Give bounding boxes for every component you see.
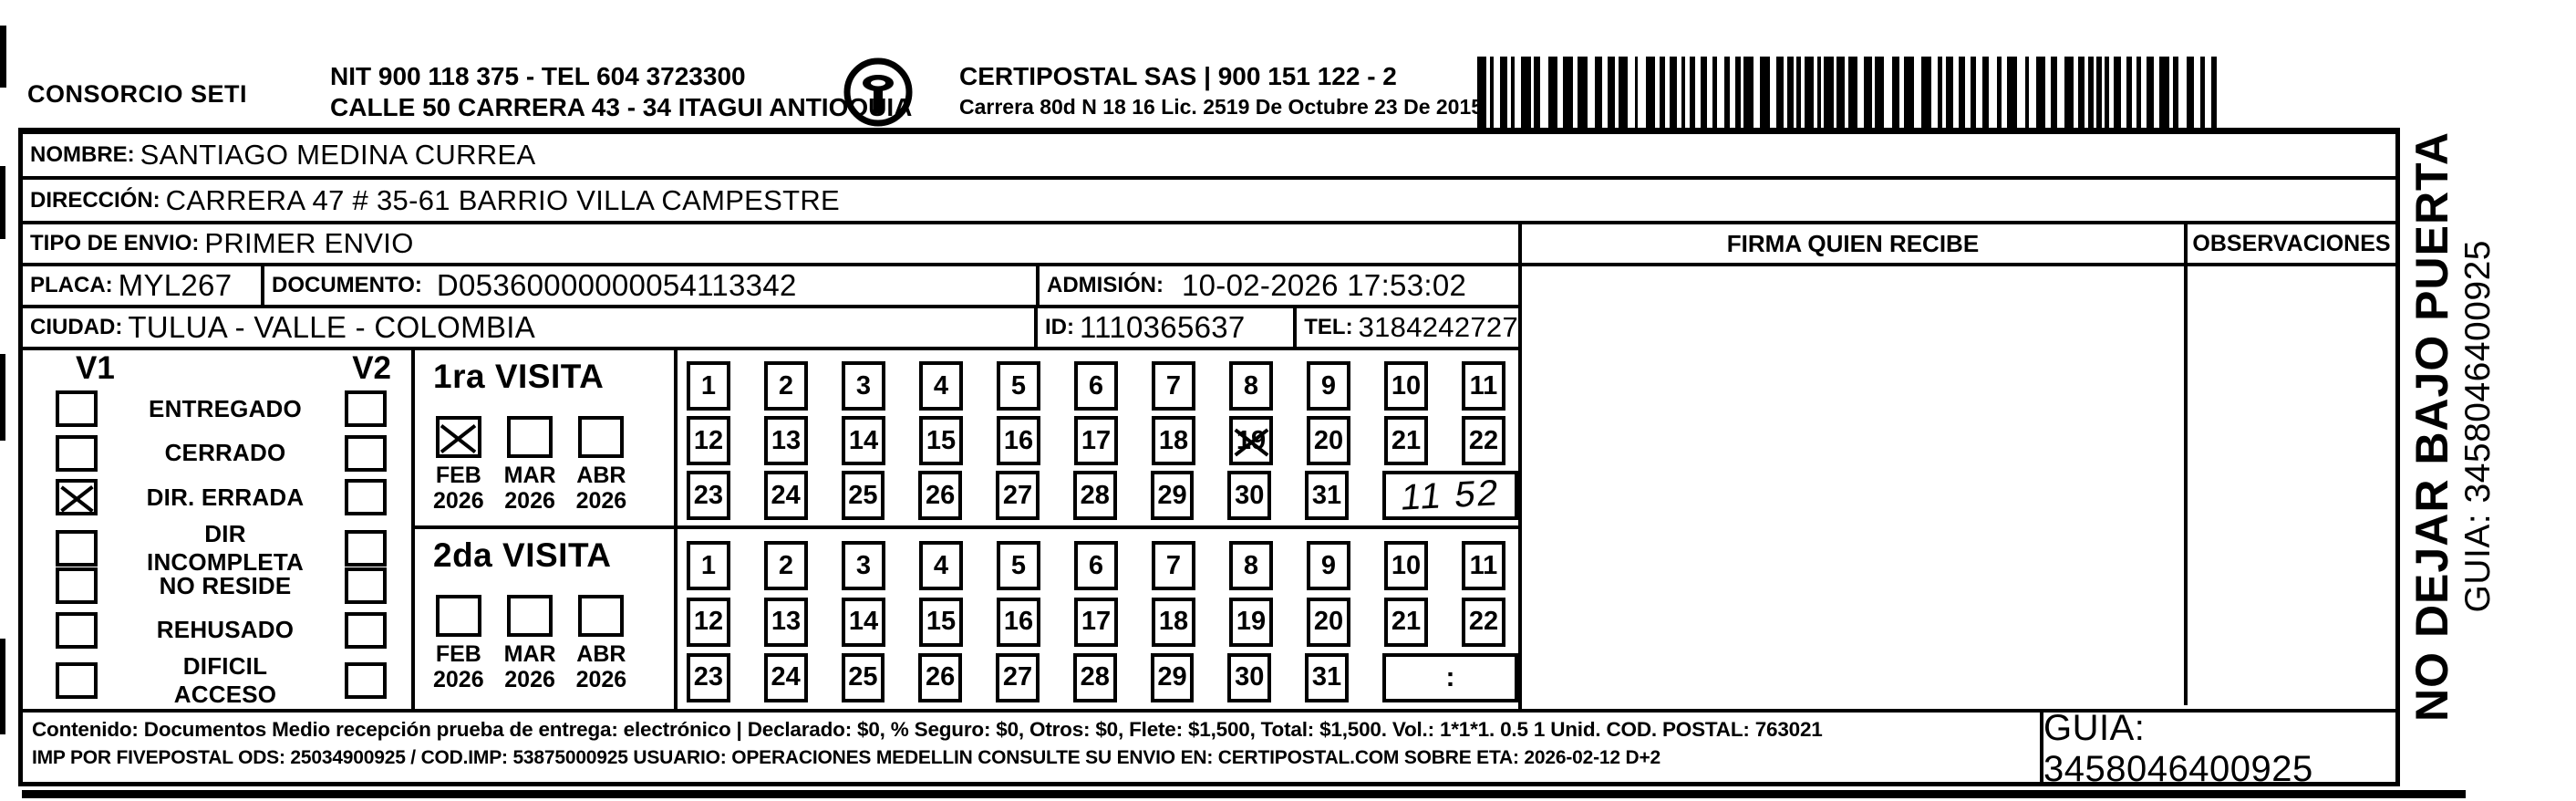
status-row: NO RESIDE	[23, 564, 411, 609]
nombre-label: NOMBRE:	[23, 142, 140, 168]
month-label: FEB2026	[433, 463, 484, 514]
tel-value: 3184242727	[1359, 311, 1518, 344]
status-row: DIR INCOMPLETA	[23, 520, 411, 565]
v1-checkbox	[56, 479, 98, 515]
calendar-row: 1213141516171819202122	[687, 598, 1518, 647]
calendar-row: 23242526272829303111 52	[687, 471, 1518, 520]
v2-checkbox	[345, 530, 387, 567]
month-checkboxes: FEB2026MAR2026ABR2026	[433, 595, 674, 692]
day-cell: 15	[919, 416, 963, 465]
tel-label: TEL:	[1297, 315, 1358, 340]
day-cell: 25	[842, 471, 885, 520]
month-checkbox	[507, 595, 553, 637]
day-cell: 6	[1074, 361, 1118, 411]
day-cell: 14	[842, 598, 885, 647]
status-option-label: NO RESIDE	[130, 572, 320, 600]
day-cell: 28	[1073, 471, 1117, 520]
status-row: ENTREGADO	[23, 387, 411, 432]
month-checkbox	[507, 416, 553, 458]
day-cell: 9	[1307, 541, 1350, 590]
month-option: MAR2026	[504, 595, 556, 692]
guia-number: GUIA: 3458046400925	[2043, 713, 2395, 785]
row-ciudad: CIUDAD: TULUA - VALLE - COLOMBIA ID: 111…	[23, 308, 1518, 350]
v2-header: V2	[352, 350, 391, 387]
admision-label: ADMISIÓN:	[1040, 273, 1169, 298]
nombre-value: SANTIAGO MEDINA CURREA	[140, 139, 536, 172]
day-cell: 3	[842, 361, 885, 411]
id-value: 1110365637	[1080, 310, 1246, 345]
row-nombre: NOMBRE: SANTIAGO MEDINA CURREA	[23, 134, 2395, 180]
calendar-row: 1234567891011	[687, 361, 1518, 411]
day-cell: 11	[1462, 361, 1505, 411]
day-cell: 11	[1462, 541, 1505, 590]
day-cell: 16	[997, 416, 1040, 465]
day-cell: 9	[1307, 361, 1350, 411]
month-option: FEB2026	[433, 595, 484, 692]
ciudad-value: TULUA - VALLE - COLOMBIA	[128, 310, 535, 345]
day-cell: 12	[687, 598, 730, 647]
day-cell: 28	[1073, 653, 1117, 702]
calendar-row: 232425262728293031:	[687, 653, 1518, 702]
month-label: FEB2026	[433, 642, 484, 692]
day-cell: 16	[997, 598, 1040, 647]
day-cell: 27	[996, 471, 1040, 520]
v2-checkbox	[345, 567, 387, 604]
day-cell: 22	[1462, 416, 1505, 465]
company-line: CERTIPOSTAL SAS | 900 151 122 - 2	[959, 62, 1397, 91]
v1-checkbox	[56, 390, 98, 427]
time-cell: :	[1382, 653, 1518, 702]
status-row: DIFICIL ACCESO	[23, 652, 411, 697]
status-option-label: DIFICIL ACCESO	[130, 652, 320, 709]
visit-title: 2da VISITA	[433, 536, 674, 575]
direccion-value: CARRERA 47 # 35-61 BARRIO VILLA CAMPESTR…	[166, 184, 840, 217]
status-option-label: ENTREGADO	[130, 395, 320, 423]
day-cell: 12	[687, 416, 730, 465]
fineprint-cell: Contenido: Documentos Medio recepción pr…	[23, 713, 2043, 785]
month-checkbox	[436, 416, 481, 458]
placa-label: PLACA:	[23, 273, 119, 298]
delivery-form: NOMBRE: SANTIAGO MEDINA CURREA DIRECCIÓN…	[18, 128, 2400, 786]
day-cell: 29	[1151, 653, 1195, 702]
scan-edge-mark	[0, 26, 6, 88]
day-cell: 4	[919, 541, 963, 590]
company-address: Carrera 80d N 18 16 Lic. 2519 De Octubre…	[959, 95, 1483, 120]
month-option: MAR2026	[504, 416, 556, 514]
barcode	[1477, 57, 2220, 128]
day-cell: 5	[997, 541, 1040, 590]
calendar-row: 1213141516171819202122	[687, 416, 1518, 465]
day-cell: 3	[842, 541, 885, 590]
day-cell: 27	[996, 653, 1040, 702]
v1-header: V1	[76, 350, 115, 387]
footer-strip: Contenido: Documentos Medio recepción pr…	[23, 709, 2395, 785]
day-cell: 21	[1384, 416, 1428, 465]
tel-cell: TEL: 3184242727	[1297, 308, 1518, 347]
observaciones-header: OBSERVACIONES	[2188, 224, 2395, 263]
day-cell: 19	[1229, 416, 1273, 465]
day-cell: 6	[1074, 541, 1118, 590]
day-cell: 10	[1384, 541, 1428, 590]
day-cell: 22	[1462, 598, 1505, 647]
month-checkboxes: FEB2026MAR2026ABR2026	[433, 416, 674, 514]
firma-quien-recibe-header: FIRMA QUIEN RECIBE	[1522, 224, 2188, 263]
observaciones-blank-cell	[2188, 266, 2395, 705]
day-cell: 2	[764, 541, 808, 590]
status-panel: V1 V2 ENTREGADOCERRADODIR. ERRADADIR INC…	[23, 350, 415, 709]
v2-checkbox	[345, 435, 387, 472]
print-info-line: IMP POR FIVEPOSTAL ODS: 25034900925 / CO…	[32, 747, 2033, 769]
day-cell: 20	[1307, 416, 1350, 465]
day-cell: 4	[919, 361, 963, 411]
month-option: ABR2026	[576, 595, 627, 692]
placa-value: MYL267	[119, 268, 233, 303]
day-cell: 18	[1152, 416, 1195, 465]
v1-checkbox	[56, 662, 98, 699]
status-row: REHUSADO	[23, 609, 411, 653]
day-cell: 13	[764, 416, 808, 465]
month-option: ABR2026	[576, 416, 627, 514]
first-visit-panel: 1ra VISITA FEB2026MAR2026ABR2026	[415, 350, 678, 529]
month-label: ABR2026	[576, 642, 627, 692]
status-option-label: REHUSADO	[130, 616, 320, 644]
v2-checkbox	[345, 662, 387, 699]
firma-blank-cell	[1522, 266, 2188, 705]
day-cell: 31	[1305, 653, 1349, 702]
day-cell: 30	[1227, 471, 1271, 520]
signature-area: FIRMA QUIEN RECIBE OBSERVACIONES	[1518, 224, 2395, 709]
day-cell: 23	[687, 471, 730, 520]
day-cell: 7	[1152, 361, 1195, 411]
v1-checkbox	[56, 435, 98, 472]
documento-cell: DOCUMENTO: D05360000000054113342	[264, 266, 1040, 305]
day-cell: 21	[1384, 598, 1428, 647]
status-row: DIR. ERRADA	[23, 475, 411, 520]
visit-title: 1ra VISITA	[433, 358, 674, 396]
ciudad-cell: CIUDAD: TULUA - VALLE - COLOMBIA	[23, 308, 1038, 347]
month-label: ABR2026	[576, 463, 627, 514]
day-cell: 17	[1074, 598, 1118, 647]
day-cell: 19	[1229, 598, 1273, 647]
handwritten-time-cell: 11 52	[1382, 471, 1518, 520]
side-note: NO DEJAR BAJO PUERTA GUIA: 3458046400925	[2405, 141, 2498, 712]
scan-edge-mark	[0, 354, 5, 441]
day-cell: 15	[919, 598, 963, 647]
day-cell: 8	[1229, 541, 1273, 590]
v1-checkbox	[56, 567, 98, 604]
scan-edge-mark	[0, 166, 5, 239]
day-cell: 5	[997, 361, 1040, 411]
calendar-row: 1234567891011	[687, 541, 1518, 590]
day-cell: 25	[842, 653, 885, 702]
day-cell: 7	[1152, 541, 1195, 590]
day-cell: 30	[1227, 653, 1271, 702]
day-cell: 13	[764, 598, 808, 647]
ciudad-label: CIUDAD:	[23, 315, 128, 340]
admision-value: 10-02-2026 17:53:02	[1169, 268, 1466, 303]
id-cell: ID: 1110365637	[1038, 308, 1297, 347]
day-cell: 29	[1151, 471, 1195, 520]
day-cell: 31	[1305, 471, 1349, 520]
day-cell: 23	[687, 653, 730, 702]
month-label: MAR2026	[504, 642, 556, 692]
admision-cell: ADMISIÓN: 10-02-2026 17:53:02	[1040, 266, 1518, 305]
status-option-label: CERRADO	[130, 439, 320, 467]
month-option: FEB2026	[433, 416, 484, 514]
day-cell: 1	[687, 541, 730, 590]
status-option-label: DIR. ERRADA	[130, 484, 320, 512]
month-label: MAR2026	[504, 463, 556, 514]
day-cell: 10	[1384, 361, 1428, 411]
tipo-envio-label: TIPO DE ENVIO:	[23, 231, 204, 256]
day-cell: 24	[764, 471, 808, 520]
v1-checkbox	[56, 612, 98, 649]
status-options: ENTREGADOCERRADODIR. ERRADADIR INCOMPLET…	[23, 387, 411, 697]
v2-checkbox	[345, 390, 387, 427]
month-checkbox	[578, 595, 624, 637]
id-label: ID:	[1038, 315, 1080, 340]
first-visit-calendar: 1234567891011121314151617181920212223242…	[678, 350, 1518, 529]
month-checkbox	[436, 595, 481, 637]
day-cell: 8	[1229, 361, 1273, 411]
row-tipo-envio: TIPO DE ENVIO: PRIMER ENVIO	[23, 224, 1518, 266]
documento-value: D05360000000054113342	[428, 268, 797, 303]
status-row: CERRADO	[23, 432, 411, 476]
address-line: CALLE 50 CARRERA 43 - 34 ITAGUI ANTIOQUI…	[330, 93, 912, 122]
no-dejar-bajo-puerta-note: NO DEJAR BAJO PUERTA	[2405, 131, 2458, 722]
v2-checkbox	[345, 612, 387, 649]
day-cell: 14	[842, 416, 885, 465]
documento-label: DOCUMENTO:	[264, 273, 428, 298]
day-cell: 18	[1152, 598, 1195, 647]
day-cell: 20	[1307, 598, 1350, 647]
day-cell: 1	[687, 361, 730, 411]
tipo-envio-value: PRIMER ENVIO	[204, 227, 413, 260]
second-visit-panel: 2da VISITA FEB2026MAR2026ABR2026	[415, 529, 678, 709]
nit-line: NIT 900 118 375 - TEL 604 3723300	[330, 62, 746, 91]
consorcio-name: CONSORCIO SETI	[27, 80, 247, 109]
certipostal-logo-icon	[841, 55, 916, 130]
direccion-label: DIRECCIÓN:	[23, 188, 166, 213]
content-declaration-line: Contenido: Documentos Medio recepción pr…	[32, 718, 2033, 742]
v1-checkbox	[56, 530, 98, 567]
row-direccion: DIRECCIÓN: CARRERA 47 # 35-61 BARRIO VIL…	[23, 180, 2395, 224]
row-placa: PLACA: MYL267 DOCUMENTO: D05360000000054…	[23, 266, 1518, 308]
month-checkbox	[578, 416, 624, 458]
day-cell: 26	[918, 653, 962, 702]
day-cell: 24	[764, 653, 808, 702]
second-visit-calendar: 1234567891011121314151617181920212223242…	[678, 529, 1518, 709]
scan-bottom-streak	[22, 790, 2466, 798]
side-guia-number: GUIA: 3458046400925	[2458, 240, 2498, 613]
day-cell: 26	[918, 471, 962, 520]
placa-cell: PLACA: MYL267	[23, 266, 264, 305]
day-cell: 17	[1074, 416, 1118, 465]
scan-edge-mark	[0, 639, 5, 734]
v2-checkbox	[345, 479, 387, 515]
day-cell: 2	[764, 361, 808, 411]
